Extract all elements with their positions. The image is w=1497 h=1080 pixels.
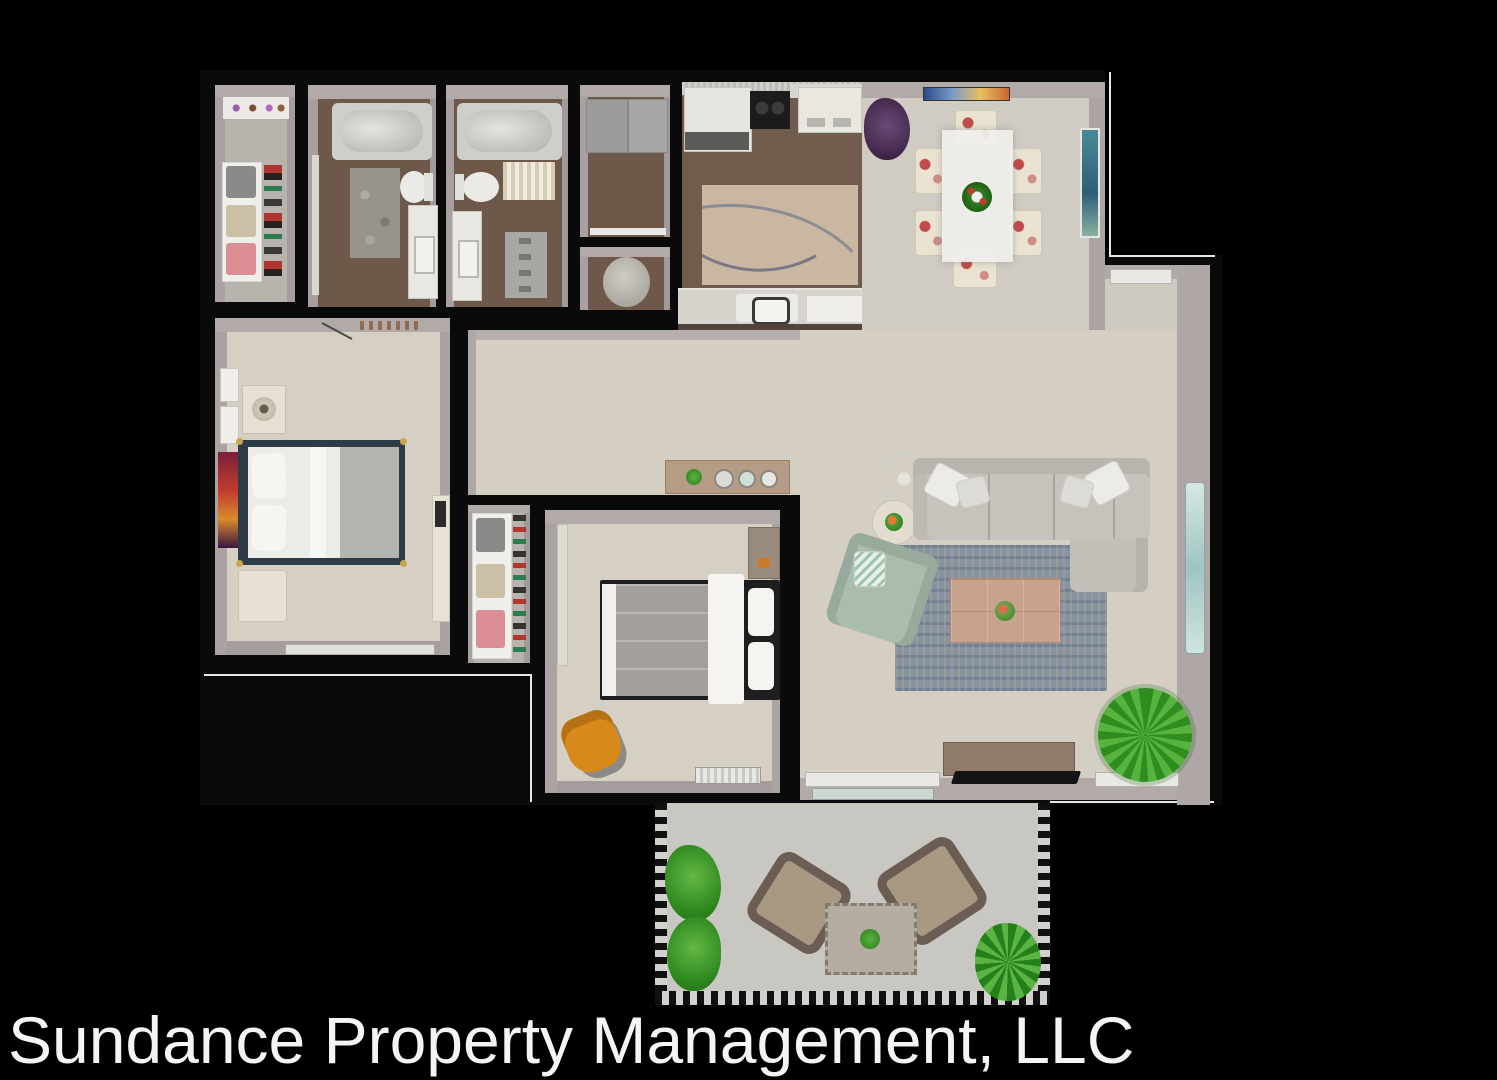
coffee-table [950,578,1061,643]
exterior-outline [1109,72,1111,257]
vanity-sink [452,211,482,301]
dining-chair [1008,148,1042,194]
baseboard-heater [695,767,761,784]
closet-door-strip [557,524,568,666]
cushion-divider [1053,474,1055,540]
walk-in-closet [215,85,295,302]
bed-blanket-gray [616,584,708,696]
nightstand [748,527,780,579]
closet-shelving-unit [472,513,512,659]
orange-chair [556,705,628,779]
refrigerator-lower [685,132,749,150]
master-bedroom [215,318,450,655]
island-tray [833,118,851,127]
sink-basin [458,240,479,278]
exterior-outline [1109,255,1215,257]
bathroom-door [312,155,319,295]
striped-rug [503,162,555,200]
tv [951,771,1081,784]
dining-area [862,82,1105,330]
bed-sheet-edge [602,584,616,696]
console-plant [686,469,702,485]
bed-pillow [748,588,774,636]
planter-shrub [667,917,721,991]
entry [1105,265,1177,330]
red-wall-art [218,452,238,548]
nightstand [242,385,286,434]
bed-duvet-gray [340,447,399,558]
bathtub [457,103,562,160]
console-decor [760,470,778,488]
sectional-chaise [1070,538,1148,592]
table-lamp [252,397,276,421]
folded-clothes-gray [226,166,256,198]
bed-throw-white [708,574,744,704]
bathtub-basin [464,110,552,152]
bathroom-1 [308,85,436,307]
patio-railing-right [1038,803,1050,1005]
bathtub [332,103,432,160]
palm-plant [975,923,1041,1001]
shoe-rack [513,515,526,655]
laundry-closet [580,85,670,237]
cooktop [750,91,790,129]
bedroom-2 [545,510,780,793]
refrigerator [684,87,752,152]
master-bed [238,440,405,565]
nightstand-decor [758,558,770,568]
bed-2 [600,580,780,700]
bench [238,570,287,622]
water-closet [580,247,670,310]
folded-clothes-pink [476,610,505,648]
bed-post [400,438,407,445]
shelf [590,228,666,235]
white-wall-frame [220,368,239,402]
bed-post [236,438,243,445]
dryer [628,99,668,153]
wall-mirror [1185,482,1205,654]
toilet [463,172,499,202]
toilet [603,257,650,307]
bedroom-window [285,644,435,655]
toilet-tank [455,174,464,200]
display-shelf [223,97,289,119]
table-centerpiece [995,601,1015,621]
vanity-sink [408,205,438,299]
patio-table [825,903,917,975]
bath-rug [350,168,400,258]
bathroom-2 [446,85,568,307]
patio-table-plant [860,929,880,949]
folded-clothes-pink [226,243,256,275]
kitchen-sink [736,294,798,322]
bed-runner [310,447,326,558]
bed-pillow [251,504,287,551]
patio-railing-left [655,803,667,1005]
bed-post [400,560,407,567]
patio [655,803,1050,1005]
dining-chair [1008,210,1042,256]
bath-mat [505,232,547,298]
wall-art-multicolor [923,87,1010,101]
footer-brand-text: Sundance Property Management, LLC [8,1002,1134,1078]
door-swing [322,322,353,340]
folded-clothes-beige [476,564,505,598]
cushion-divider [988,474,990,540]
hall-closet [468,505,530,663]
dresser-tv [435,501,446,527]
console-decor [714,469,734,489]
console-table [665,460,790,494]
console-decor [738,470,756,488]
centerpiece-wreath [962,182,992,212]
purple-plant [864,98,910,160]
wall-decor-twigs [360,321,418,330]
side-table-plant [885,513,903,531]
floor-plan-canvas: Sundance Property Management, LLC [0,0,1497,1080]
living-room-plant [1098,688,1192,782]
bed-post [236,560,243,567]
armchair-pillow [854,551,886,587]
toilet-tank [424,173,433,201]
closet-shelving-unit [222,162,262,282]
folded-clothes-gray [476,518,505,552]
hanging-clothes [264,165,282,280]
front-door [1110,269,1172,284]
island-tray [807,118,825,127]
bathtub-basin [339,110,423,152]
dresser [432,495,450,622]
kitchen-rug [702,185,858,285]
bed-pillow [251,452,287,500]
island-cart [798,87,862,133]
bed-pillow [748,642,774,690]
exterior-outline [530,674,532,802]
exterior-outline [204,674,532,676]
sink-basin [414,236,435,274]
folded-clothes-beige [226,205,256,237]
washer [586,99,628,153]
framed-painting [1080,128,1100,238]
sliding-door-glass [812,788,934,800]
sink-basin [752,297,790,325]
planter-shrub [665,845,721,921]
window-sill [805,772,940,787]
